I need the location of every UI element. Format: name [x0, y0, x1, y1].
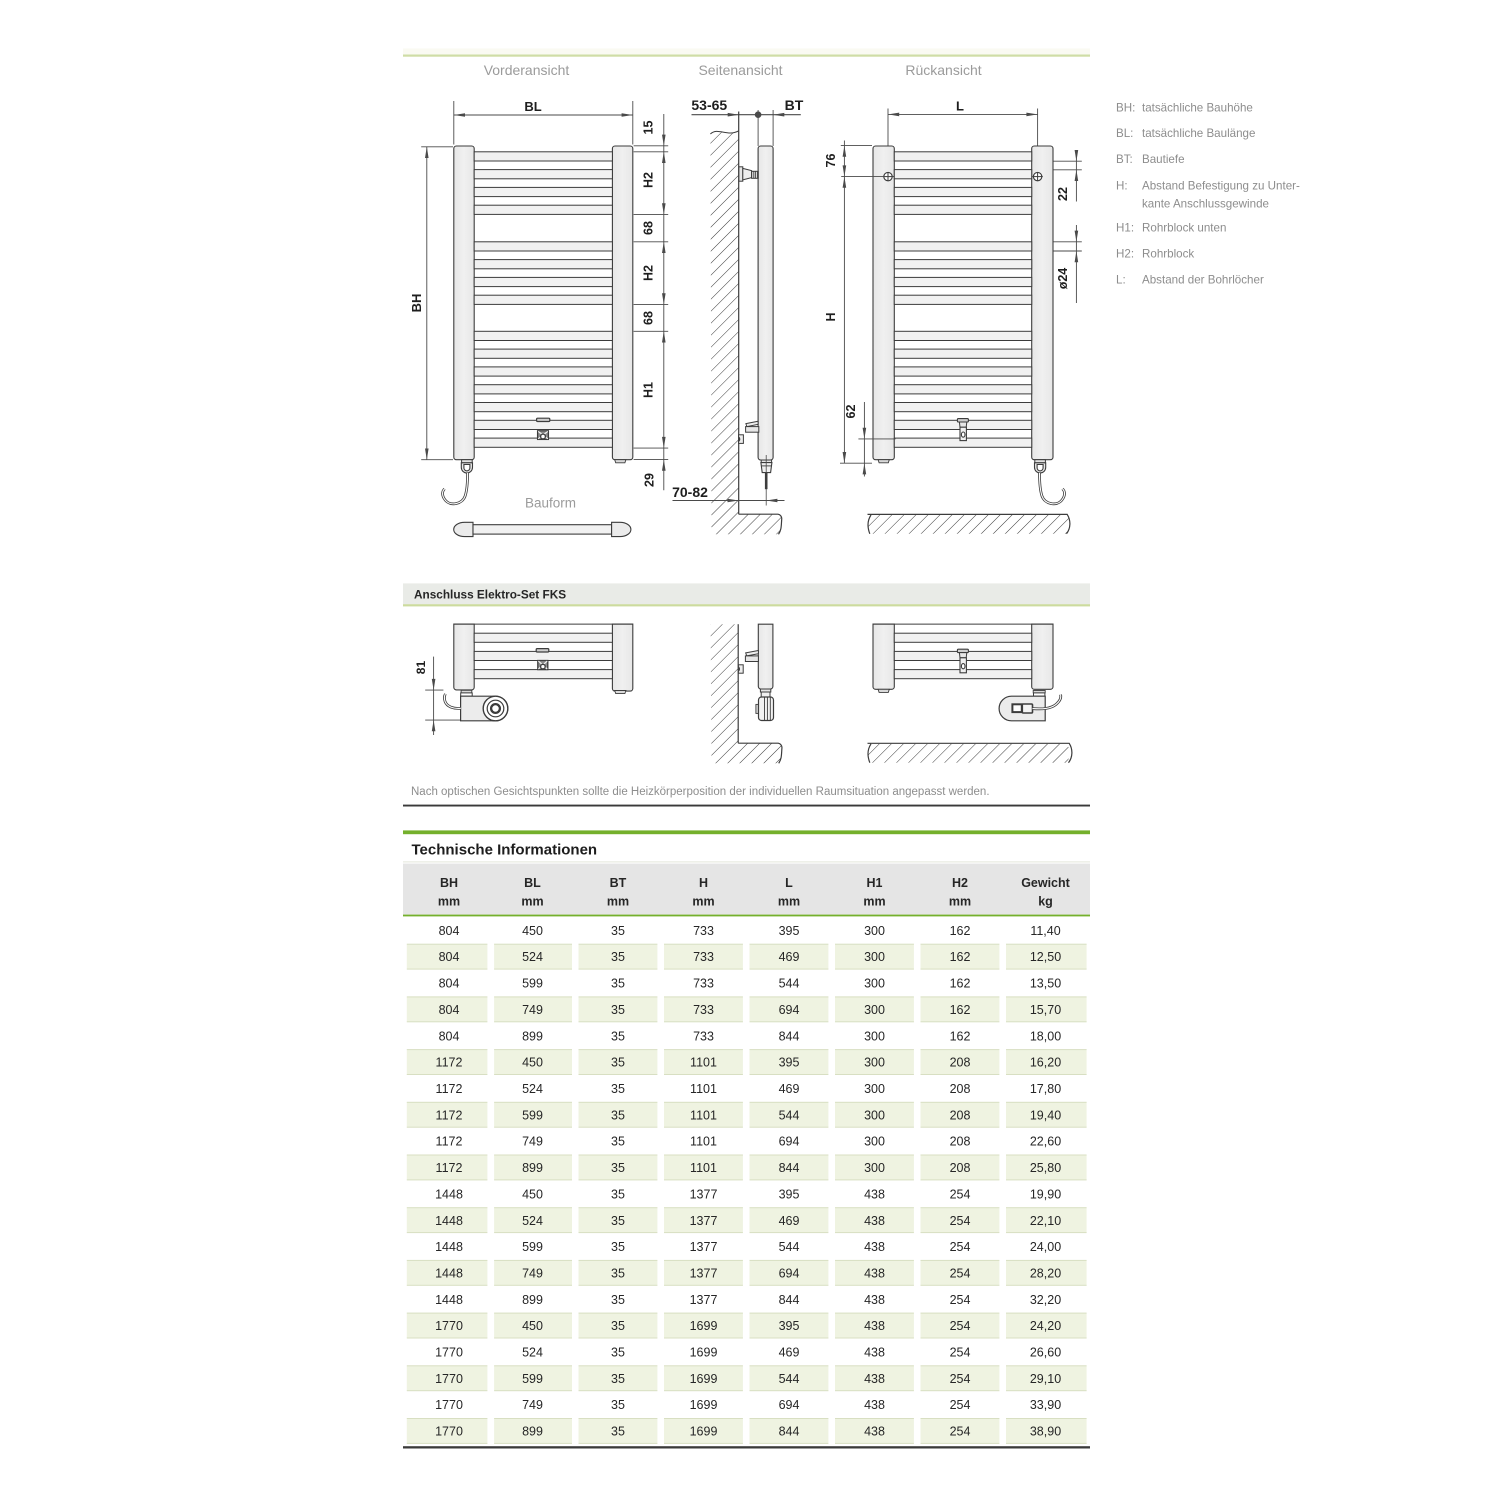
svg-text:1377: 1377: [690, 1240, 718, 1254]
svg-text:Nach optischen Gesichtspunkten: Nach optischen Gesichtspunkten sollte di…: [411, 786, 990, 798]
svg-text:35: 35: [611, 1346, 625, 1360]
svg-text:524: 524: [522, 1346, 543, 1360]
svg-text:1448: 1448: [435, 1240, 463, 1254]
svg-text:1377: 1377: [690, 1187, 718, 1201]
svg-text:804: 804: [439, 977, 460, 991]
svg-text:469: 469: [779, 1346, 800, 1360]
svg-text:208: 208: [950, 1161, 971, 1175]
svg-text:1770: 1770: [435, 1346, 463, 1360]
svg-text:1770: 1770: [435, 1398, 463, 1412]
svg-text:208: 208: [950, 1135, 971, 1149]
svg-text:35: 35: [611, 1214, 625, 1228]
svg-text:68: 68: [641, 311, 655, 325]
svg-text:438: 438: [864, 1240, 885, 1254]
svg-text:395: 395: [779, 1319, 800, 1333]
svg-text:35: 35: [611, 1187, 625, 1201]
svg-text:70-82: 70-82: [672, 484, 708, 500]
svg-text:450: 450: [522, 1319, 543, 1333]
svg-text:1770: 1770: [435, 1319, 463, 1333]
svg-text:733: 733: [693, 950, 714, 964]
svg-text:208: 208: [950, 1082, 971, 1096]
svg-text:13,50: 13,50: [1030, 977, 1061, 991]
svg-text:1101: 1101: [690, 1056, 717, 1070]
svg-text:35: 35: [611, 1135, 625, 1149]
svg-text:300: 300: [864, 1135, 885, 1149]
svg-text:mm: mm: [607, 895, 629, 909]
svg-text:254: 254: [950, 1319, 971, 1333]
svg-text:11,40: 11,40: [1030, 924, 1060, 938]
svg-text:1172: 1172: [436, 1056, 463, 1070]
svg-text:Vorderansicht: Vorderansicht: [484, 62, 570, 78]
svg-text:L: L: [785, 876, 793, 890]
svg-text:Rohrblock unten: Rohrblock unten: [1142, 222, 1226, 235]
svg-text:1770: 1770: [435, 1425, 463, 1439]
svg-text:899: 899: [522, 1029, 543, 1043]
svg-text:BH:: BH:: [1116, 102, 1135, 115]
svg-text:395: 395: [779, 1187, 800, 1201]
svg-text:kante Anschlussgewinde: kante Anschlussgewinde: [1142, 198, 1269, 211]
svg-text:BT:: BT:: [1116, 153, 1133, 166]
svg-text:1172: 1172: [436, 1135, 463, 1149]
svg-text:18,00: 18,00: [1030, 1029, 1061, 1043]
svg-text:844: 844: [779, 1029, 800, 1043]
svg-text:254: 254: [950, 1293, 971, 1307]
svg-text:H:: H:: [1116, 180, 1128, 193]
svg-text:844: 844: [779, 1425, 800, 1439]
svg-text:162: 162: [950, 1003, 971, 1017]
svg-text:208: 208: [950, 1056, 971, 1070]
svg-text:35: 35: [611, 1398, 625, 1412]
svg-text:1699: 1699: [690, 1425, 718, 1439]
svg-text:BL: BL: [524, 876, 541, 890]
svg-text:524: 524: [522, 1214, 543, 1228]
svg-text:35: 35: [611, 1293, 625, 1307]
svg-text:Anschluss Elektro-Set FKS: Anschluss Elektro-Set FKS: [414, 588, 566, 602]
svg-text:H: H: [699, 876, 708, 890]
svg-text:35: 35: [611, 950, 625, 964]
svg-text:254: 254: [950, 1240, 971, 1254]
svg-text:22,10: 22,10: [1030, 1214, 1061, 1228]
svg-text:300: 300: [864, 977, 885, 991]
svg-text:28,20: 28,20: [1030, 1266, 1061, 1280]
svg-text:mm: mm: [949, 895, 971, 909]
svg-text:H2:: H2:: [1116, 248, 1134, 261]
svg-text:1448: 1448: [435, 1187, 463, 1201]
svg-text:300: 300: [864, 924, 885, 938]
svg-text:mm: mm: [692, 895, 714, 909]
svg-text:599: 599: [522, 1240, 543, 1254]
svg-text:1699: 1699: [690, 1346, 718, 1360]
svg-text:tatsächliche Bauhöhe: tatsächliche Bauhöhe: [1142, 102, 1253, 115]
svg-text:469: 469: [779, 1082, 800, 1096]
svg-text:254: 254: [950, 1266, 971, 1280]
svg-text:35: 35: [611, 1003, 625, 1017]
svg-text:12,50: 12,50: [1030, 950, 1061, 964]
svg-text:749: 749: [522, 1398, 543, 1412]
svg-text:1699: 1699: [690, 1372, 718, 1386]
svg-text:BT: BT: [610, 876, 627, 890]
svg-text:438: 438: [864, 1187, 885, 1201]
svg-text:254: 254: [950, 1214, 971, 1228]
svg-text:438: 438: [864, 1425, 885, 1439]
svg-text:24,00: 24,00: [1030, 1240, 1061, 1254]
svg-text:469: 469: [779, 950, 800, 964]
svg-text:1377: 1377: [690, 1214, 718, 1228]
svg-text:544: 544: [779, 1240, 800, 1254]
svg-text:Abstand Befestigung zu Unter-: Abstand Befestigung zu Unter-: [1142, 180, 1300, 193]
svg-text:438: 438: [864, 1319, 885, 1333]
svg-text:300: 300: [864, 1108, 885, 1122]
svg-text:15,70: 15,70: [1030, 1003, 1061, 1017]
svg-text:15: 15: [641, 121, 655, 135]
svg-text:H2: H2: [641, 172, 655, 188]
svg-text:H1: H1: [867, 876, 883, 890]
svg-text:254: 254: [950, 1372, 971, 1386]
svg-text:Seitenansicht: Seitenansicht: [698, 62, 782, 78]
svg-text:H2: H2: [952, 876, 968, 890]
svg-text:899: 899: [522, 1293, 543, 1307]
svg-text:300: 300: [864, 1082, 885, 1096]
svg-text:H2: H2: [641, 265, 655, 281]
svg-text:ø24: ø24: [1056, 268, 1070, 290]
svg-text:254: 254: [950, 1398, 971, 1412]
svg-text:438: 438: [864, 1372, 885, 1386]
svg-text:L: L: [956, 99, 964, 114]
svg-text:749: 749: [522, 1003, 543, 1017]
svg-text:38,90: 38,90: [1030, 1425, 1061, 1439]
svg-text:733: 733: [693, 1029, 714, 1043]
svg-text:469: 469: [779, 1214, 800, 1228]
svg-text:17,80: 17,80: [1030, 1082, 1061, 1096]
svg-text:33,90: 33,90: [1030, 1398, 1061, 1412]
svg-text:BL: BL: [524, 99, 541, 114]
svg-text:438: 438: [864, 1346, 885, 1360]
svg-text:1172: 1172: [436, 1161, 463, 1175]
svg-text:BH: BH: [440, 876, 458, 890]
svg-text:mm: mm: [778, 895, 800, 909]
svg-text:733: 733: [693, 977, 714, 991]
svg-text:1448: 1448: [435, 1293, 463, 1307]
svg-text:395: 395: [779, 1056, 800, 1070]
svg-text:749: 749: [522, 1135, 543, 1149]
svg-text:524: 524: [522, 950, 543, 964]
svg-text:35: 35: [611, 1266, 625, 1280]
svg-text:35: 35: [611, 1425, 625, 1439]
svg-text:694: 694: [779, 1135, 800, 1149]
svg-text:899: 899: [522, 1425, 543, 1439]
svg-text:254: 254: [950, 1187, 971, 1201]
svg-text:25,80: 25,80: [1030, 1161, 1061, 1175]
svg-text:76: 76: [824, 154, 838, 168]
svg-text:19,40: 19,40: [1030, 1108, 1061, 1122]
svg-text:899: 899: [522, 1161, 543, 1175]
svg-text:35: 35: [611, 924, 625, 938]
svg-text:32,20: 32,20: [1030, 1293, 1061, 1307]
svg-text:438: 438: [864, 1214, 885, 1228]
svg-text:35: 35: [611, 1319, 625, 1333]
svg-text:844: 844: [779, 1293, 800, 1307]
svg-text:162: 162: [950, 977, 971, 991]
svg-text:35: 35: [611, 1108, 625, 1122]
svg-text:kg: kg: [1038, 895, 1053, 909]
svg-text:35: 35: [611, 1082, 625, 1096]
svg-text:749: 749: [522, 1266, 543, 1280]
svg-text:H1: H1: [641, 382, 655, 398]
svg-text:544: 544: [779, 977, 800, 991]
svg-text:H1:: H1:: [1116, 222, 1134, 235]
svg-text:524: 524: [522, 1082, 543, 1096]
svg-text:L:: L:: [1116, 274, 1126, 287]
svg-text:804: 804: [439, 1029, 460, 1043]
svg-text:29: 29: [643, 473, 657, 487]
svg-text:438: 438: [864, 1266, 885, 1280]
svg-text:254: 254: [950, 1425, 971, 1439]
svg-text:733: 733: [693, 1003, 714, 1017]
svg-text:Gewicht: Gewicht: [1021, 876, 1070, 890]
svg-text:844: 844: [779, 1161, 800, 1175]
svg-text:1699: 1699: [690, 1319, 718, 1333]
svg-text:694: 694: [779, 1266, 800, 1280]
svg-text:Abstand der Bohrlöcher: Abstand der Bohrlöcher: [1142, 274, 1264, 287]
svg-text:35: 35: [611, 1056, 625, 1070]
svg-text:300: 300: [864, 1056, 885, 1070]
svg-text:544: 544: [779, 1372, 800, 1386]
svg-text:1377: 1377: [690, 1293, 718, 1307]
svg-text:450: 450: [522, 1056, 543, 1070]
svg-text:Bauform: Bauform: [525, 496, 576, 511]
svg-text:35: 35: [611, 1372, 625, 1386]
svg-text:1699: 1699: [690, 1398, 718, 1412]
svg-text:81: 81: [414, 661, 428, 675]
svg-text:29,10: 29,10: [1030, 1372, 1061, 1386]
svg-text:35: 35: [611, 977, 625, 991]
svg-text:300: 300: [864, 1003, 885, 1017]
svg-text:300: 300: [864, 950, 885, 964]
svg-text:BL:: BL:: [1116, 127, 1133, 140]
svg-text:1448: 1448: [435, 1214, 463, 1228]
svg-text:599: 599: [522, 1372, 543, 1386]
svg-text:162: 162: [950, 1029, 971, 1043]
svg-text:19,90: 19,90: [1030, 1187, 1061, 1201]
svg-text:1377: 1377: [690, 1266, 718, 1280]
svg-text:300: 300: [864, 1161, 885, 1175]
svg-text:Bautiefe: Bautiefe: [1142, 153, 1185, 166]
svg-text:BH: BH: [409, 294, 424, 313]
svg-text:Technische Informationen: Technische Informationen: [412, 842, 598, 859]
svg-text:1101: 1101: [690, 1161, 717, 1175]
svg-text:H: H: [824, 312, 838, 321]
svg-text:1101: 1101: [690, 1135, 717, 1149]
svg-text:22,60: 22,60: [1030, 1135, 1061, 1149]
svg-text:35: 35: [611, 1161, 625, 1175]
svg-text:438: 438: [864, 1293, 885, 1307]
svg-text:26,60: 26,60: [1030, 1346, 1061, 1360]
svg-text:62: 62: [844, 405, 858, 419]
svg-text:1172: 1172: [436, 1082, 463, 1096]
svg-text:162: 162: [950, 950, 971, 964]
svg-text:694: 694: [779, 1398, 800, 1412]
svg-text:804: 804: [439, 924, 460, 938]
svg-text:450: 450: [522, 1187, 543, 1201]
svg-text:1448: 1448: [435, 1266, 463, 1280]
svg-text:mm: mm: [438, 895, 460, 909]
svg-text:Rohrblock: Rohrblock: [1142, 248, 1194, 261]
svg-text:694: 694: [779, 1003, 800, 1017]
svg-text:599: 599: [522, 1108, 543, 1122]
svg-text:438: 438: [864, 1398, 885, 1412]
svg-text:300: 300: [864, 1029, 885, 1043]
svg-text:1101: 1101: [690, 1082, 717, 1096]
svg-text:68: 68: [641, 221, 655, 235]
svg-text:16,20: 16,20: [1030, 1056, 1061, 1070]
svg-text:162: 162: [950, 924, 971, 938]
svg-text:395: 395: [779, 924, 800, 938]
svg-text:544: 544: [779, 1108, 800, 1122]
svg-text:450: 450: [522, 924, 543, 938]
svg-text:1172: 1172: [436, 1108, 463, 1122]
svg-text:599: 599: [522, 977, 543, 991]
svg-text:mm: mm: [521, 895, 543, 909]
svg-text:1770: 1770: [435, 1372, 463, 1386]
svg-text:804: 804: [439, 950, 460, 964]
svg-text:208: 208: [950, 1108, 971, 1122]
svg-text:Rückansicht: Rückansicht: [905, 62, 981, 78]
svg-text:733: 733: [693, 924, 714, 938]
svg-text:53-65: 53-65: [691, 97, 727, 113]
svg-text:254: 254: [950, 1346, 971, 1360]
svg-text:24,20: 24,20: [1030, 1319, 1061, 1333]
svg-text:BT: BT: [785, 97, 804, 113]
svg-text:22: 22: [1056, 187, 1070, 201]
svg-text:tatsächliche Baulänge: tatsächliche Baulänge: [1142, 127, 1255, 140]
svg-text:35: 35: [611, 1240, 625, 1254]
svg-text:1101: 1101: [690, 1108, 717, 1122]
svg-text:35: 35: [611, 1029, 625, 1043]
svg-text:804: 804: [439, 1003, 460, 1017]
svg-text:mm: mm: [863, 895, 885, 909]
